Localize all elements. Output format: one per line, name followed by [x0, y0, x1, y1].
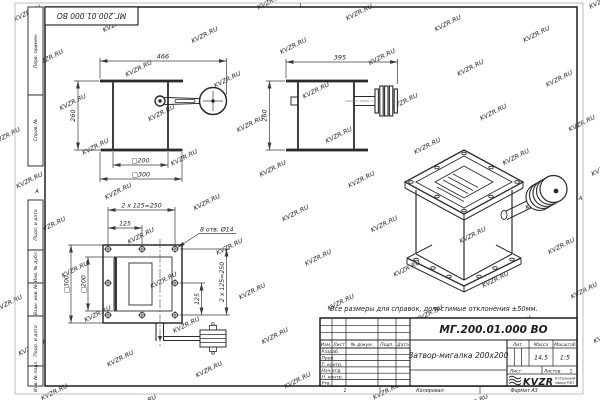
field-podp-data-1: Подп. и дата: [33, 209, 39, 240]
zone-number: 1: [343, 388, 346, 394]
sheets-value: 1: [570, 368, 573, 374]
side-counterweight-discs: [375, 86, 397, 116]
front-shaft-center: [158, 99, 161, 102]
side-top-flange: [286, 80, 368, 83]
field-inv-podl: Инв. № подл.: [33, 360, 39, 392]
field-inv-dubl: Инв. № дубл.: [33, 251, 39, 282]
row-razrab: Разраб.: [322, 349, 340, 355]
plan-dim-holes-text: 8 отв. Ø14: [200, 226, 234, 234]
plan-dim-outer-text: □300: [64, 275, 71, 293]
plan-dim-125-top-text: 125: [119, 221, 131, 228]
lit-label: Лит.: [512, 342, 523, 348]
title-block: Изм. Лист № докум. Подп. Дата Разраб. Пр…: [320, 318, 577, 388]
part-name: Затвор-мигалка 200x200: [409, 351, 509, 360]
front-weight-center: [211, 99, 215, 103]
front-bottom-flange: [101, 149, 183, 152]
copied-label: Копировал: [416, 388, 443, 394]
mass-label: Масса: [534, 342, 549, 348]
col-list: Лист: [332, 342, 345, 348]
format-label: Формат А3: [510, 388, 537, 394]
drawing-sheet: KVZR.RU А А МГ.200.01.000 ВО Перв. приме…: [0, 0, 600, 400]
col-sign: Подп.: [380, 342, 394, 348]
field-vzam-inv: Взам. инв. №: [33, 284, 39, 315]
plan-dim-125-right-text: 125: [194, 293, 201, 305]
zone-letter-right: А: [578, 196, 583, 202]
col-date: Дата: [396, 342, 409, 348]
col-doc: № докум.: [350, 342, 373, 348]
org-line1: Котельный: [555, 377, 576, 381]
designation: МГ.200.01.000 ВО: [439, 324, 547, 336]
row-nkontr: Н. контр.: [322, 374, 344, 380]
col-izm: Изм.: [321, 342, 332, 348]
front-top-flange: [100, 80, 183, 83]
top-designation-box: МГ.200.01.000 ВО: [45, 7, 138, 25]
row-utv: Утв.: [322, 381, 331, 387]
sheet-label: Лист: [509, 368, 522, 374]
mass-value: 14,5: [534, 355, 548, 362]
front-dim-outer-text: □300: [132, 172, 150, 179]
front-dim-inner-text: □200: [132, 158, 150, 165]
row-tkontr: Т. контр.: [322, 362, 343, 368]
logo-text: KVZR: [523, 377, 554, 388]
plan-dim-pitch-top-text: 2 x 125=250: [121, 203, 161, 210]
row-nachotd: Нач.отд.: [322, 368, 342, 374]
drawing-svg: KVZR.RU А А МГ.200.01.000 ВО Перв. приме…: [0, 0, 600, 400]
field-sprav-no: Справ. №: [33, 119, 39, 142]
side-dim-height-text: 260: [261, 109, 269, 121]
scale-label: Масштаб: [554, 342, 576, 348]
zone-letter-left: А: [34, 189, 39, 195]
org-line2: завод РЭП: [555, 381, 574, 385]
field-podp-data-2: Подп. и дата: [33, 325, 39, 356]
row-prov: Пров.: [322, 356, 335, 362]
plan-dim-pitch-right-text: 2 x 125=250: [219, 262, 226, 302]
reference-note: Все размеры для справок, допустимые откл…: [330, 305, 538, 313]
side-dim-width-text: 395: [334, 54, 346, 62]
field-perv-primen: Перв. примен.: [33, 34, 39, 69]
top-designation-text: МГ.200.01.000 ВО: [57, 11, 127, 20]
side-bottom-flange: [286, 149, 368, 152]
front-dim-height-text: 260: [69, 109, 77, 121]
scale-value: 1:5: [560, 355, 570, 362]
sheets-label: Листов: [543, 368, 561, 374]
plan-dim-inner-text: □200: [81, 275, 88, 293]
front-dim-width-text: 466: [157, 53, 169, 61]
